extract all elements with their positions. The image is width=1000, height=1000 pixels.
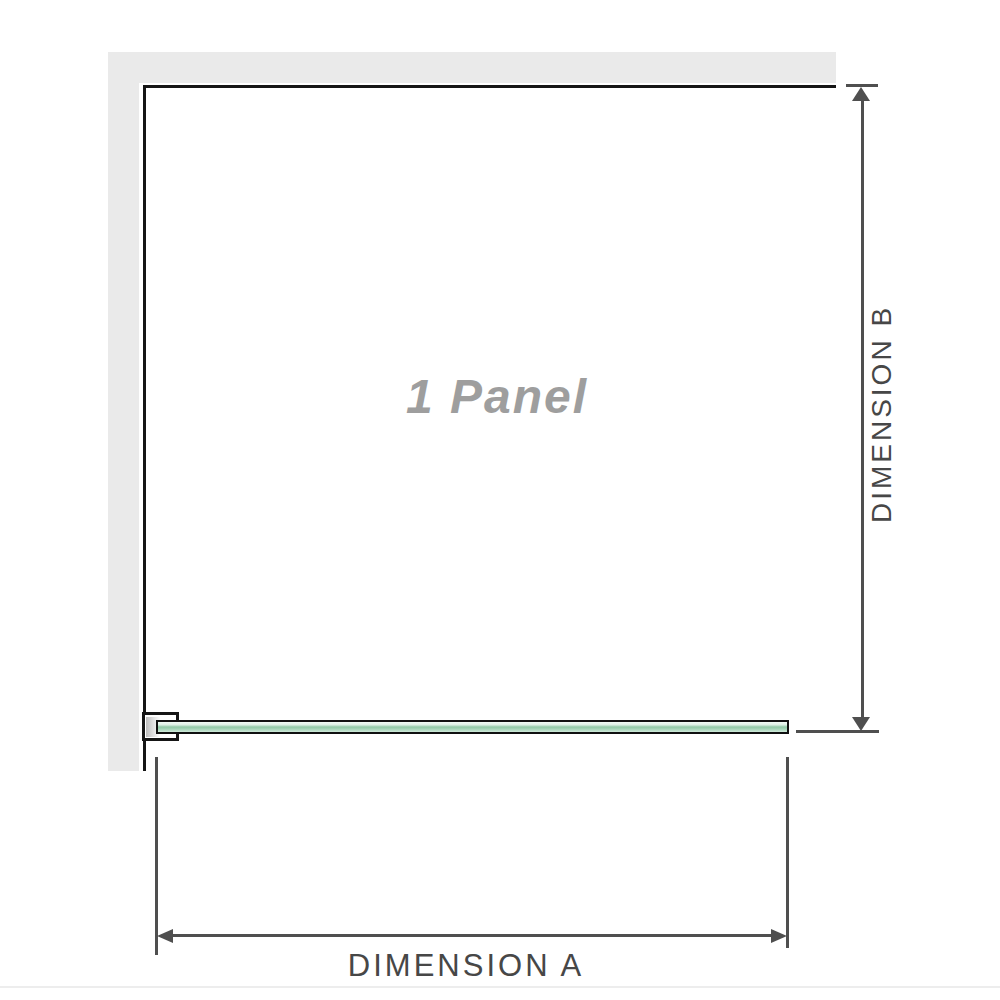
- panel-count-label: 1 Panel: [406, 369, 588, 424]
- arrow-down-icon: [852, 717, 870, 731]
- diagram-canvas: 1 Panel DIMENSION B DIMENSION A: [0, 0, 1000, 1000]
- dimension-b-label: DIMENSION B: [866, 305, 898, 523]
- wall-top-bar: [108, 52, 836, 83]
- dimension-a-label: DIMENSION A: [348, 948, 584, 984]
- wall-left-bar: [108, 52, 139, 771]
- dimension-a-right-extension: [786, 757, 789, 948]
- dimension-a-left-extension: [155, 757, 158, 955]
- panel-enclosure-outline: [143, 85, 836, 771]
- arrow-up-icon: [852, 87, 870, 101]
- dimension-b-line: [861, 94, 864, 724]
- dimension-a-line: [164, 934, 780, 937]
- arrow-right-icon: [771, 929, 787, 943]
- glass-panel: [156, 720, 789, 734]
- page-divider-line: [0, 986, 1000, 988]
- arrow-left-icon: [157, 929, 173, 943]
